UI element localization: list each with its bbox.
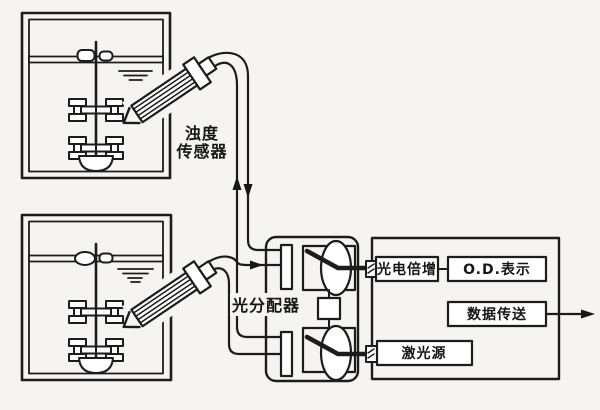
shaft-bearing-left xyxy=(78,50,95,61)
laser-source-label: 激光源 xyxy=(402,345,447,362)
bottom-impeller-bowl xyxy=(79,156,113,171)
fiber-port-plate-top xyxy=(281,245,292,289)
arrow-up-icon xyxy=(233,176,242,190)
shaft-bearing-right xyxy=(100,52,113,61)
fiber-bottom-probe-to-detector-port xyxy=(210,257,282,265)
turbidity-sensor-label-line1: 浊度 xyxy=(185,124,219,143)
shaft-bearing-right xyxy=(100,254,113,263)
turbidity-system-schematic: 浊度 传感器 光分配器 光电倍增 O.D.表示 数据传送 激光源 xyxy=(0,0,600,410)
bottom-impeller-bowl xyxy=(79,358,113,373)
light-distributor-label: 光分配器 xyxy=(231,296,300,315)
beam-coupler-block xyxy=(318,298,340,319)
liquid-surface-icon xyxy=(118,269,153,282)
turbidity-sensor-label-line2: 传感器 xyxy=(175,142,227,161)
data-output-arrow-icon xyxy=(581,310,595,319)
diagram-canvas: 浊度 传感器 光分配器 光电倍增 O.D.表示 数据传送 激光源 xyxy=(0,0,600,410)
liquid-surface-icon xyxy=(119,71,152,80)
photomultiplier-label: 光电倍增 xyxy=(376,261,437,278)
arrow-right-icon xyxy=(250,261,263,270)
turbidity-probe-bottom xyxy=(114,250,225,341)
arrow-down-icon xyxy=(244,184,253,198)
data-transmission-label: 数据传送 xyxy=(467,306,527,323)
shaft-bearing-left xyxy=(75,252,95,265)
od-display-label: O.D.表示 xyxy=(463,261,531,278)
fiber-port-plate-bottom xyxy=(281,332,292,376)
